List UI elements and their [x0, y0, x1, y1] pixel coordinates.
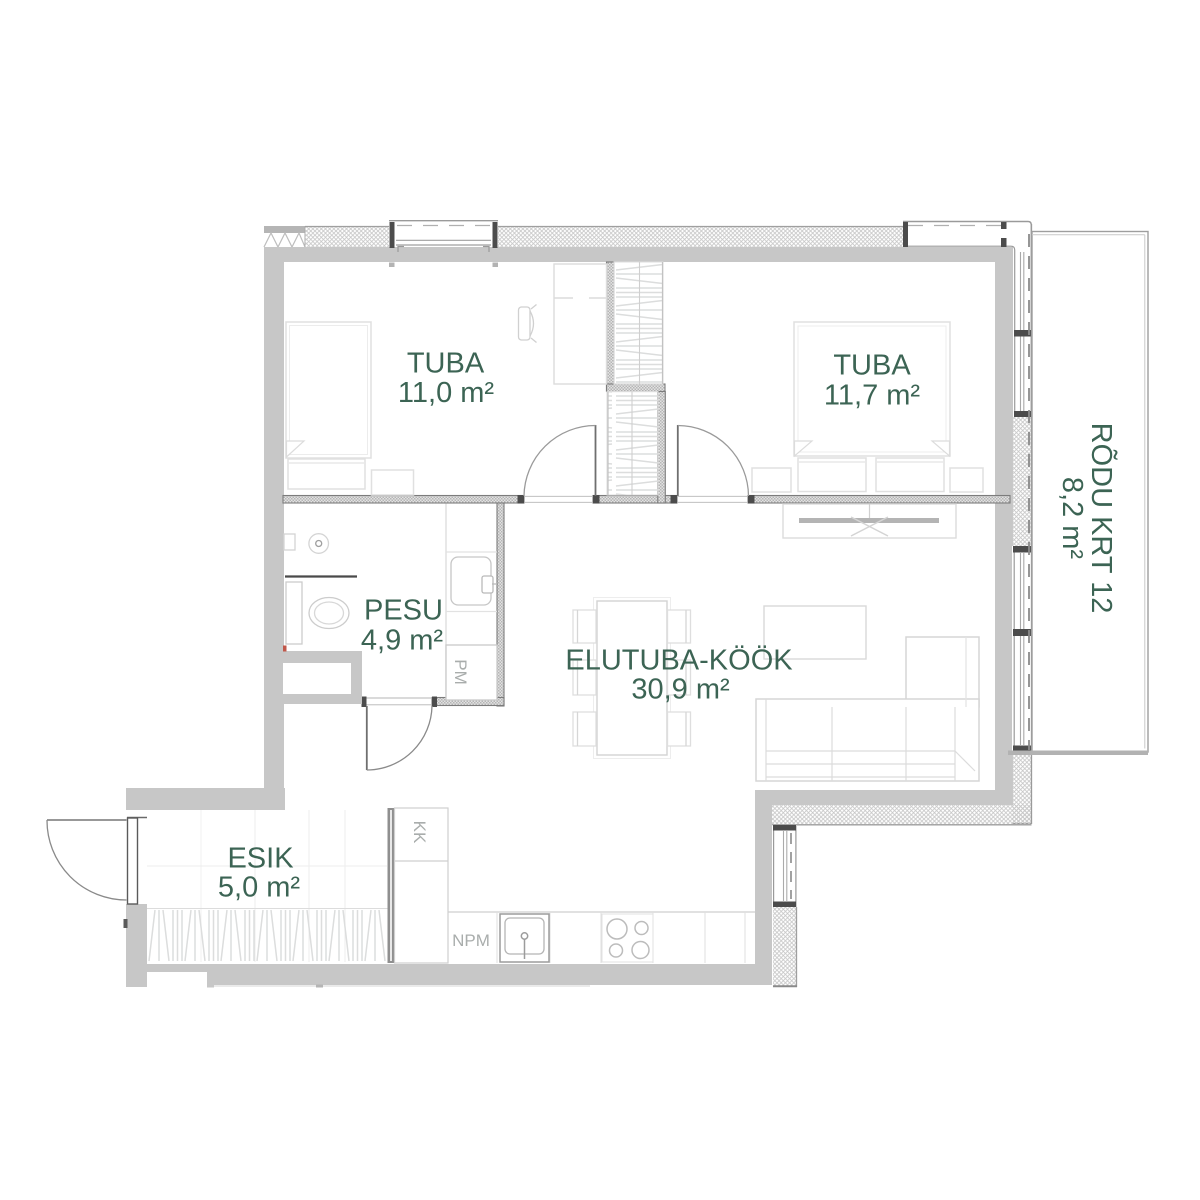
svg-text:8,2 m²: 8,2 m² — [1056, 477, 1088, 560]
svg-text:KK: KK — [410, 821, 429, 844]
svg-text:ELUTUBA-KÖÖK: ELUTUBA-KÖÖK — [565, 645, 793, 677]
svg-text:11,0 m²: 11,0 m² — [398, 377, 495, 409]
svg-text:11,7 m²: 11,7 m² — [824, 380, 921, 412]
svg-text:5,0 m²: 5,0 m² — [218, 872, 301, 904]
svg-text:TUBA: TUBA — [407, 348, 485, 380]
svg-text:PM: PM — [451, 659, 470, 685]
svg-text:4,9 m²: 4,9 m² — [361, 625, 444, 657]
svg-text:TUBA: TUBA — [833, 350, 911, 382]
svg-text:PESU: PESU — [364, 595, 443, 627]
svg-text:RÕDU KRT 12: RÕDU KRT 12 — [1085, 423, 1119, 614]
svg-text:NPM: NPM — [452, 931, 490, 950]
svg-text:30,9 m²: 30,9 m² — [631, 674, 730, 706]
svg-text:ESIK: ESIK — [227, 843, 294, 875]
